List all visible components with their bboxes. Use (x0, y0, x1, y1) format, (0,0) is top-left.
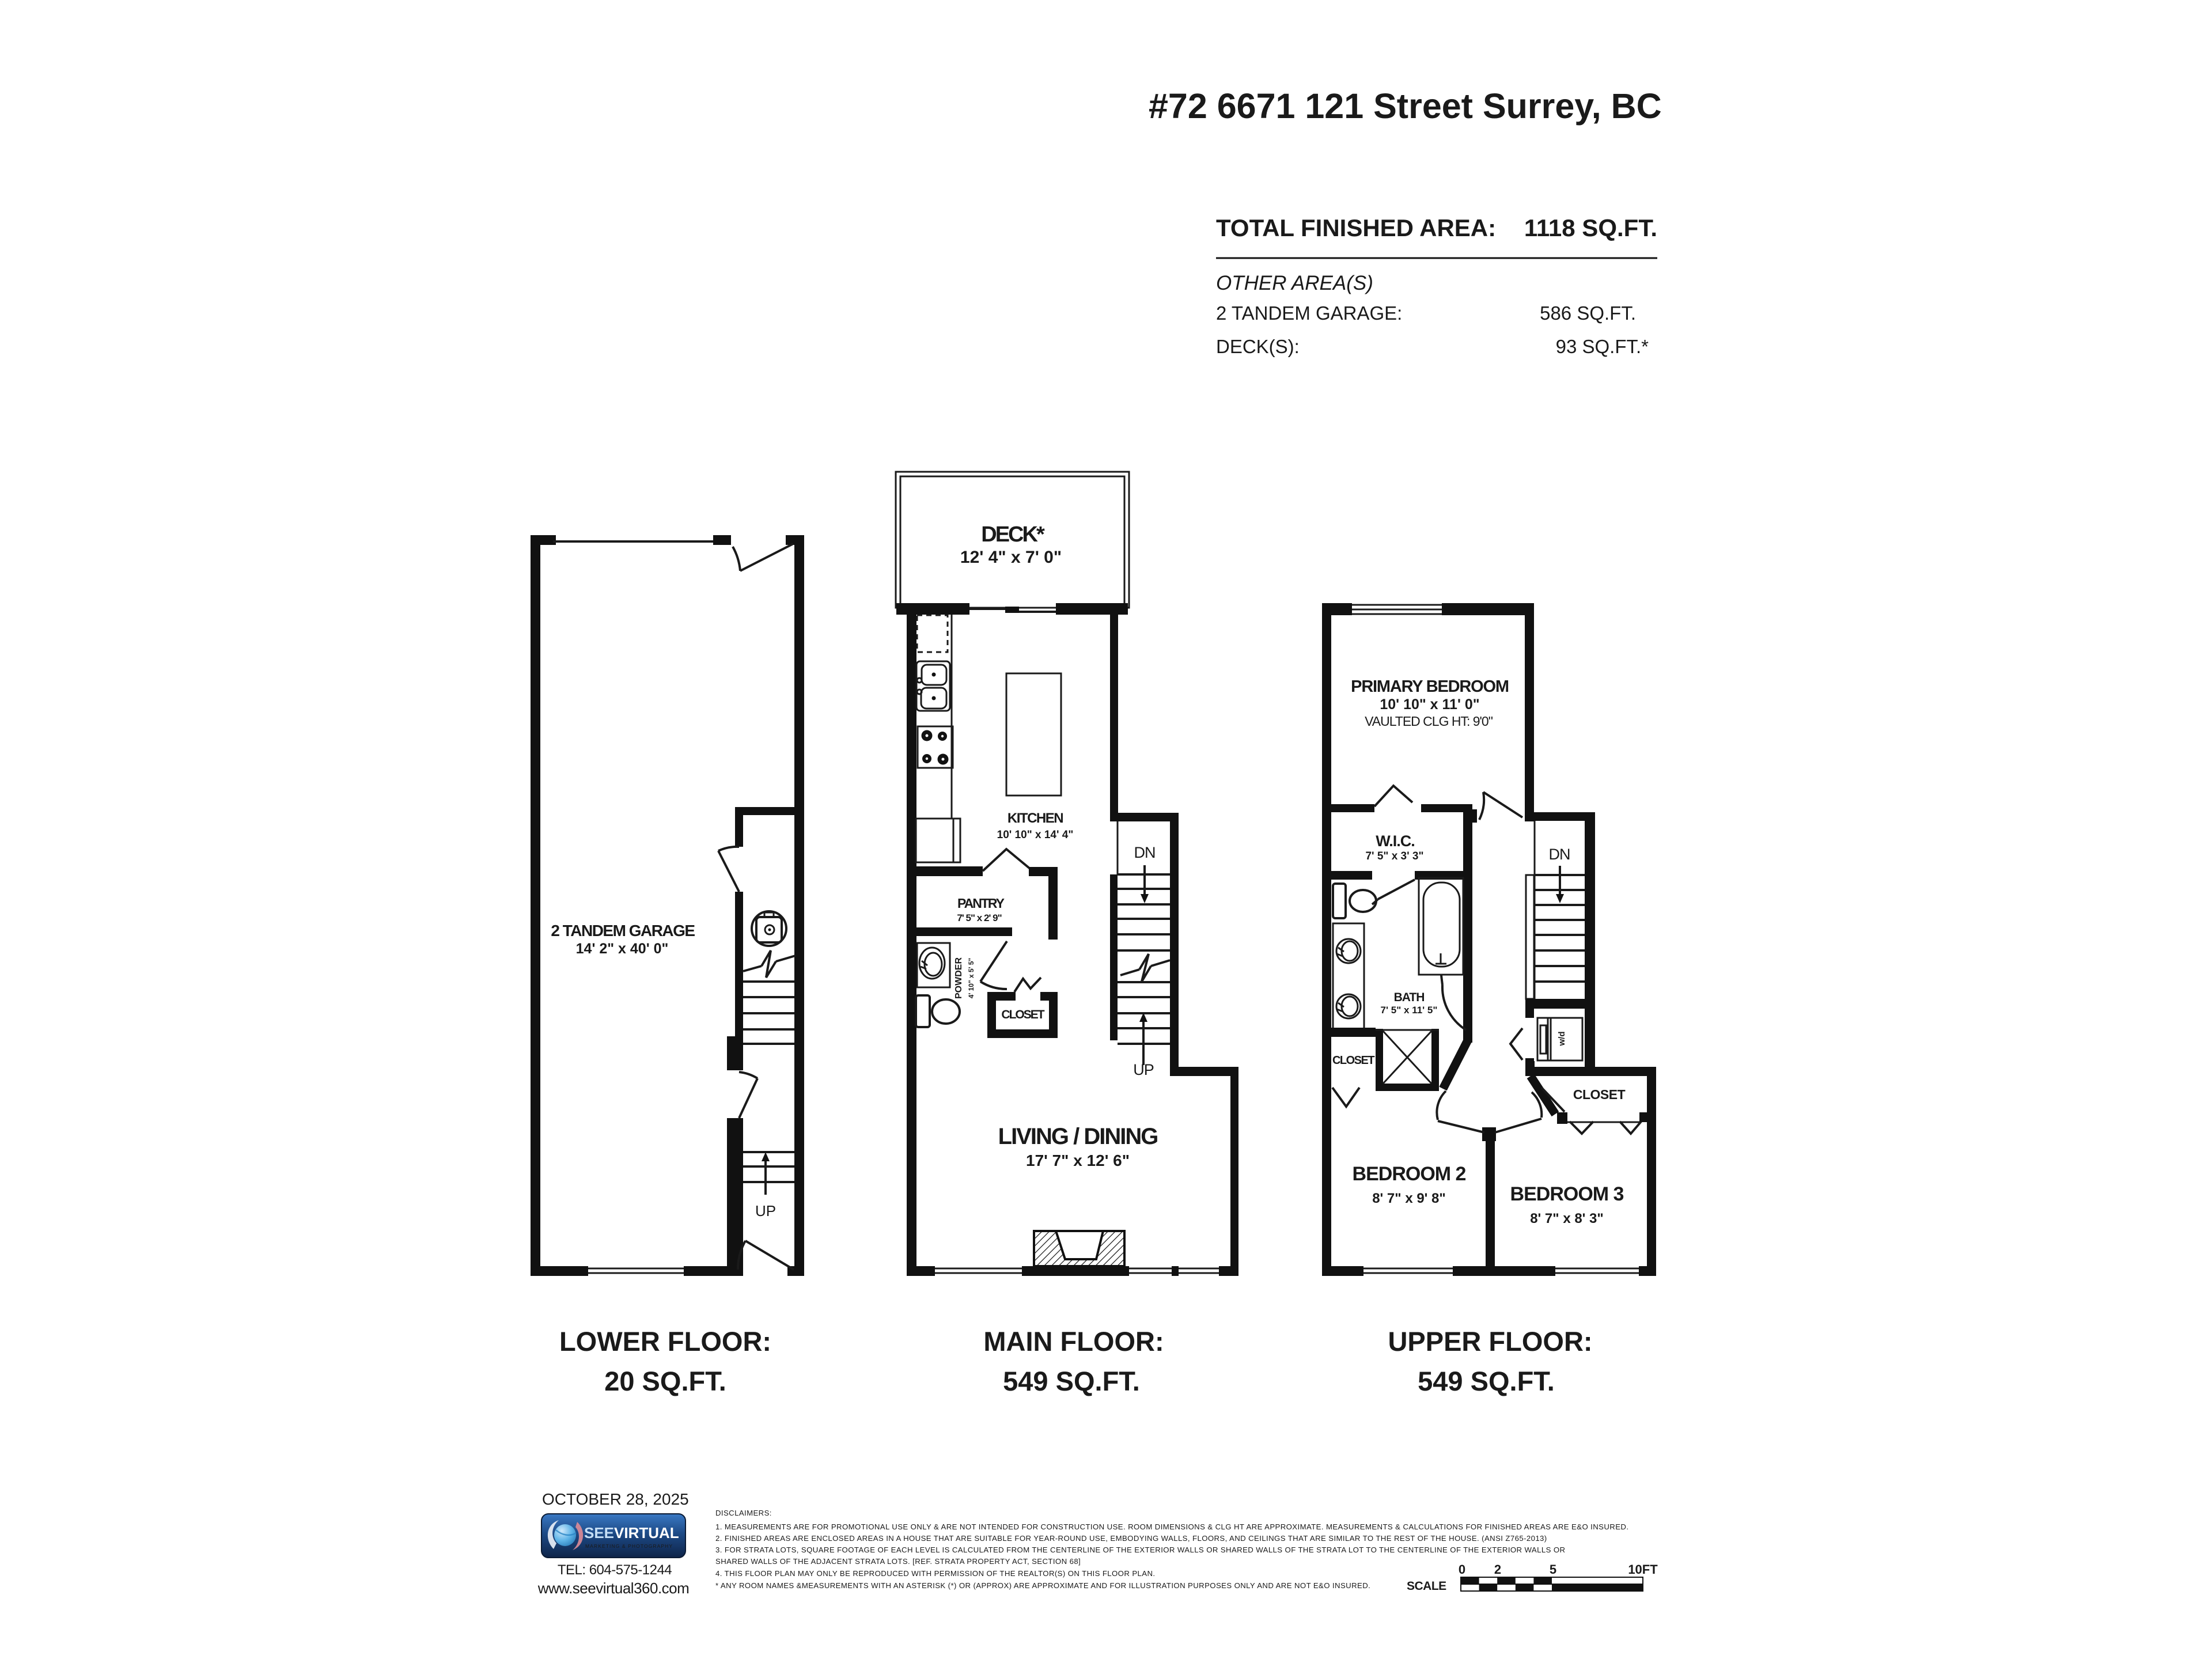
svg-text:4. THIS FLOOR PLAN MAY ONLY BE: 4. THIS FLOOR PLAN MAY ONLY BE REPRODUCE… (715, 1569, 1155, 1578)
svg-text:7' 5" x 2' 9": 7' 5" x 2' 9" (957, 912, 1001, 923)
svg-text:7' 5" x 3' 3": 7' 5" x 3' 3" (1365, 850, 1423, 862)
svg-text:LIVING / DINING: LIVING / DINING (998, 1124, 1158, 1149)
svg-text:w/d: w/d (1557, 1032, 1567, 1047)
svg-text:10' 10" x 11' 0": 10' 10" x 11' 0" (1380, 696, 1479, 713)
svg-text:549 SQ.FT.: 549 SQ.FT. (1418, 1366, 1555, 1396)
svg-text:UP: UP (1133, 1061, 1154, 1078)
svg-text:20 SQ.FT.: 20 SQ.FT. (604, 1366, 726, 1396)
svg-text:BEDROOM 3: BEDROOM 3 (1510, 1183, 1624, 1205)
svg-text:SEEVIRTUAL: SEEVIRTUAL (584, 1524, 679, 1541)
svg-text:OCTOBER 28, 2025: OCTOBER 28, 2025 (542, 1490, 689, 1508)
svg-text:10FT: 10FT (1628, 1562, 1658, 1577)
svg-text:LOWER FLOOR:: LOWER FLOOR: (559, 1326, 771, 1357)
svg-text:DECK(S):: DECK(S): (1216, 336, 1300, 357)
svg-text:1118 SQ.FT.: 1118 SQ.FT. (1524, 214, 1657, 241)
svg-text:UPPER FLOOR:: UPPER FLOOR: (1388, 1326, 1592, 1357)
svg-text:MAIN FLOOR:: MAIN FLOOR: (983, 1326, 1164, 1357)
svg-text:TOTAL FINISHED AREA:: TOTAL FINISHED AREA: (1216, 214, 1496, 241)
svg-text:12' 4" x 7' 0": 12' 4" x 7' 0" (960, 548, 1062, 567)
svg-text:* ANY ROOM NAMES &MEASUREMENT: * ANY ROOM NAMES &MEASUREMENTS WITH AN A… (715, 1581, 1370, 1590)
svg-text:BEDROOM 2: BEDROOM 2 (1353, 1163, 1466, 1185)
svg-text:4' 10" x 5' 5": 4' 10" x 5' 5" (967, 958, 975, 998)
svg-text:SCALE: SCALE (1407, 1580, 1446, 1593)
svg-text:#72 6671 121 Street Surrey, BC: #72 6671 121 Street Surrey, BC (1149, 86, 1662, 126)
svg-text:DN: DN (1134, 844, 1156, 861)
svg-text:5: 5 (1550, 1562, 1556, 1577)
svg-text:2: 2 (1494, 1562, 1501, 1577)
svg-text:KITCHEN: KITCHEN (1007, 810, 1063, 826)
svg-text:PANTRY: PANTRY (957, 896, 1005, 911)
svg-text:MARKETING & PHOTOGRAPHY: MARKETING & PHOTOGRAPHY (585, 1543, 673, 1549)
svg-text:2 TANDEM GARAGE: 2 TANDEM GARAGE (551, 922, 695, 940)
svg-text:93 SQ.FT.*: 93 SQ.FT.* (1556, 336, 1649, 357)
svg-text:8' 7" x 8' 3": 8' 7" x 8' 3" (1530, 1211, 1604, 1226)
svg-text:586 SQ.FT.: 586 SQ.FT. (1540, 302, 1636, 324)
svg-text:CLOSET: CLOSET (1332, 1054, 1374, 1067)
svg-text:CLOSET: CLOSET (1001, 1008, 1044, 1021)
svg-text:8' 7" x 9' 8": 8' 7" x 9' 8" (1372, 1191, 1446, 1206)
svg-text:VAULTED CLG HT: 9'0": VAULTED CLG HT: 9'0" (1365, 714, 1493, 729)
svg-text:W.I.C.: W.I.C. (1376, 832, 1415, 850)
svg-text:OTHER AREA(S): OTHER AREA(S) (1216, 272, 1373, 294)
svg-text:POWDER: POWDER (954, 957, 964, 999)
svg-text:SHARED WALLS OF THE ADJACENT S: SHARED WALLS OF THE ADJACENT STRATA LOTS… (715, 1557, 1081, 1566)
svg-text:DISCLAIMERS:: DISCLAIMERS: (715, 1509, 772, 1517)
svg-text:PRIMARY BEDROOM: PRIMARY BEDROOM (1351, 677, 1509, 696)
svg-text:www.seevirtual360.com: www.seevirtual360.com (537, 1580, 690, 1597)
svg-text:17' 7" x 12' 6": 17' 7" x 12' 6" (1026, 1152, 1130, 1169)
svg-text:10' 10" x 14' 4": 10' 10" x 14' 4" (997, 829, 1074, 841)
svg-text:UP: UP (755, 1202, 776, 1219)
svg-text:2 TANDEM GARAGE:: 2 TANDEM GARAGE: (1216, 302, 1402, 324)
svg-text:TEL: 604-575-1244: TEL: 604-575-1244 (558, 1562, 672, 1578)
svg-text:14' 2" x 40' 0": 14' 2" x 40' 0" (576, 941, 669, 957)
svg-text:549 SQ.FT.: 549 SQ.FT. (1003, 1366, 1140, 1396)
svg-text:DN: DN (1549, 846, 1570, 863)
svg-text:0: 0 (1459, 1562, 1465, 1577)
svg-text:BATH: BATH (1394, 991, 1425, 1004)
svg-text:CLOSET: CLOSET (1573, 1087, 1626, 1102)
svg-text:7' 5" x 11' 5": 7' 5" x 11' 5" (1381, 1005, 1438, 1016)
svg-text:3. FOR STRATA LOTS, SQUARE FOO: 3. FOR STRATA LOTS, SQUARE FOOTAGE OF EA… (715, 1546, 1565, 1554)
svg-text:2. FINISHED AREAS ARE ENCLOSED: 2. FINISHED AREAS ARE ENCLOSED AREAS IN … (715, 1534, 1547, 1543)
svg-text:1. MEASUREMENTS ARE FOR PROMOT: 1. MEASUREMENTS ARE FOR PROMOTIONAL USE … (715, 1522, 1628, 1531)
svg-text:DECK*: DECK* (981, 522, 1045, 547)
